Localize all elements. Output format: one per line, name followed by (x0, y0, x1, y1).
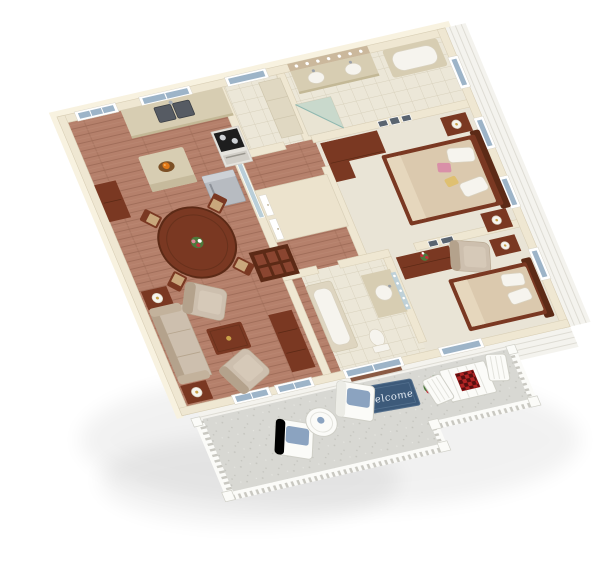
patio-chair (335, 380, 374, 422)
patio-chair (485, 354, 511, 381)
floorplan-rendering: Welcome (0, 0, 600, 581)
floorplan-svg: Welcome (0, 0, 600, 581)
armchair (449, 240, 491, 273)
